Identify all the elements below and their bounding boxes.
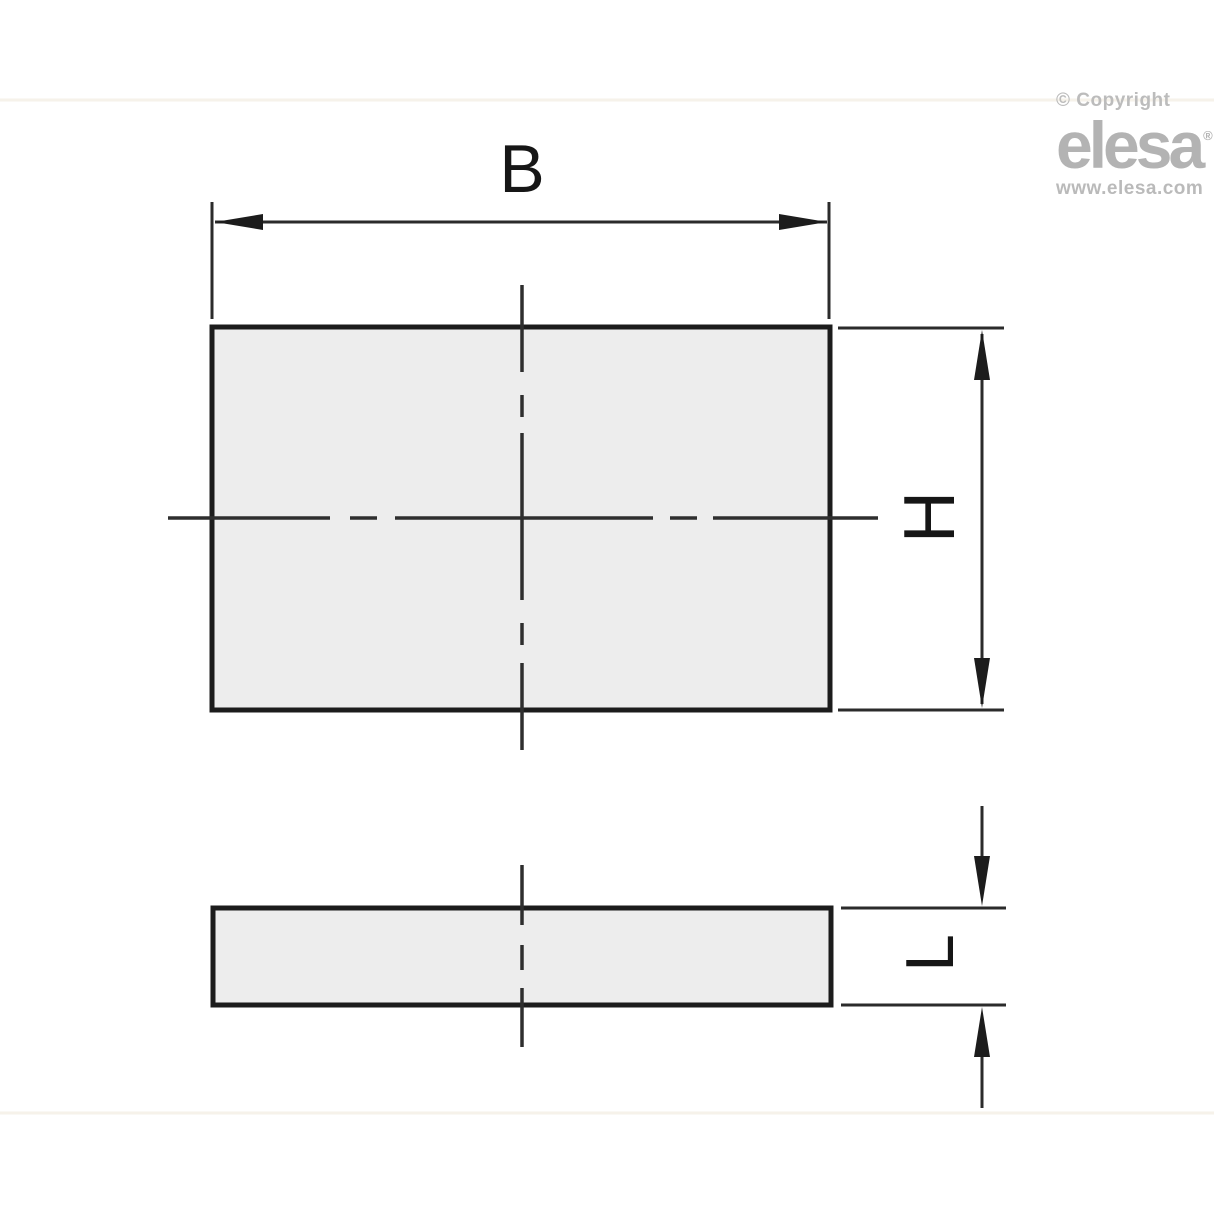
- dimension-label-thickness: L: [896, 934, 964, 972]
- registered-trademark-icon: ®: [1203, 128, 1213, 143]
- drawing-canvas: B H L © Copyright elesa® www.elesa.com: [0, 0, 1214, 1214]
- dimension-label-width: B: [499, 135, 544, 203]
- b-arrowhead-left-icon: [215, 214, 263, 230]
- h-arrowhead-down-icon: [974, 658, 990, 708]
- l-arrowhead-down-icon: [974, 856, 990, 906]
- dimension-label-height: H: [894, 491, 966, 543]
- elesa-logo-text: elesa: [1056, 108, 1201, 182]
- elesa-logo: elesa®: [1056, 114, 1214, 176]
- l-arrowhead-up-icon: [974, 1007, 990, 1057]
- brand-block: © Copyright elesa® www.elesa.com: [1056, 90, 1214, 200]
- h-arrowhead-up-icon: [974, 330, 990, 380]
- b-arrowhead-right-icon: [779, 214, 827, 230]
- technical-drawing: [0, 0, 1214, 1214]
- website-text: www.elesa.com: [1056, 178, 1214, 200]
